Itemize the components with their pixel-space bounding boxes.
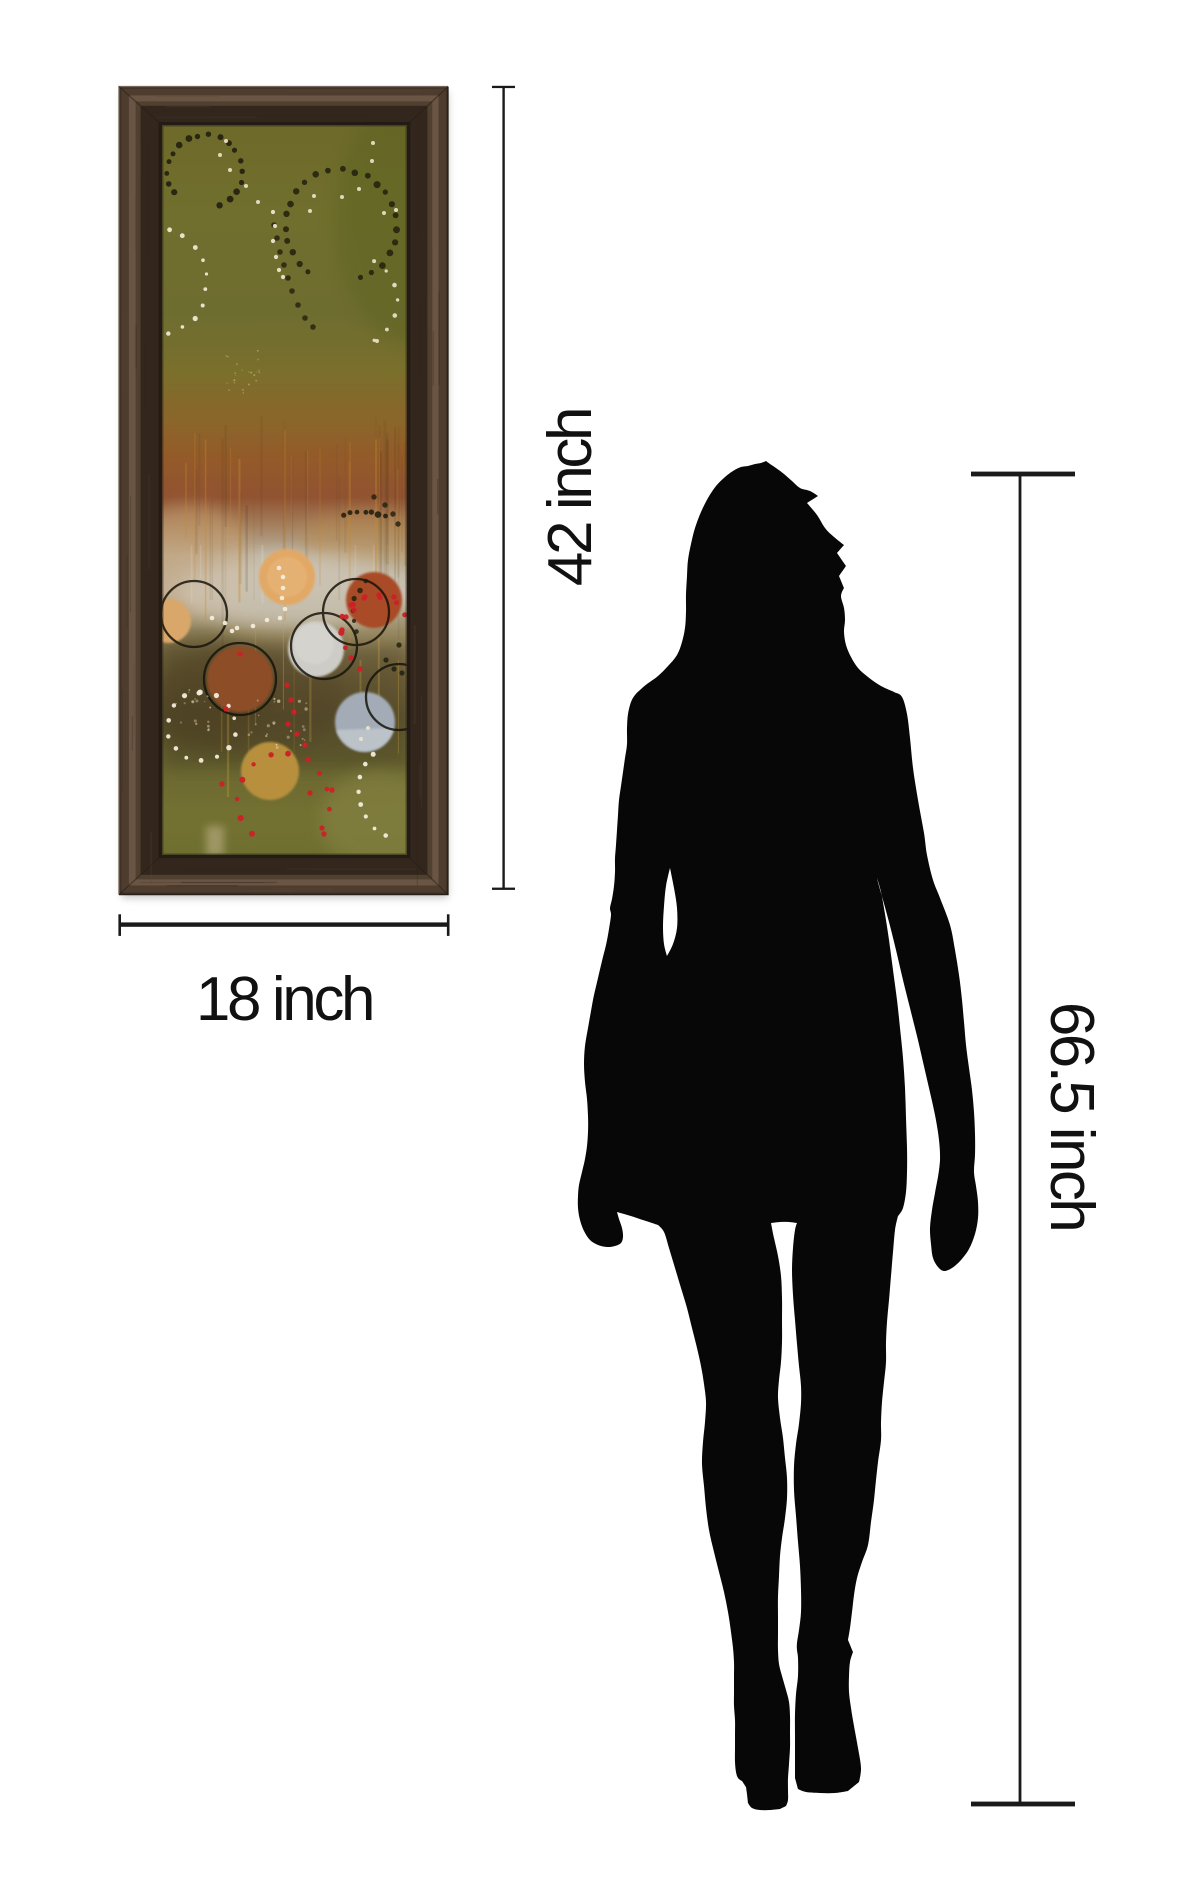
svg-text:42 inch: 42 inch <box>536 410 605 586</box>
svg-text:66.5 inch: 66.5 inch <box>1037 1002 1106 1230</box>
svg-text:18 inch: 18 inch <box>196 965 372 1034</box>
